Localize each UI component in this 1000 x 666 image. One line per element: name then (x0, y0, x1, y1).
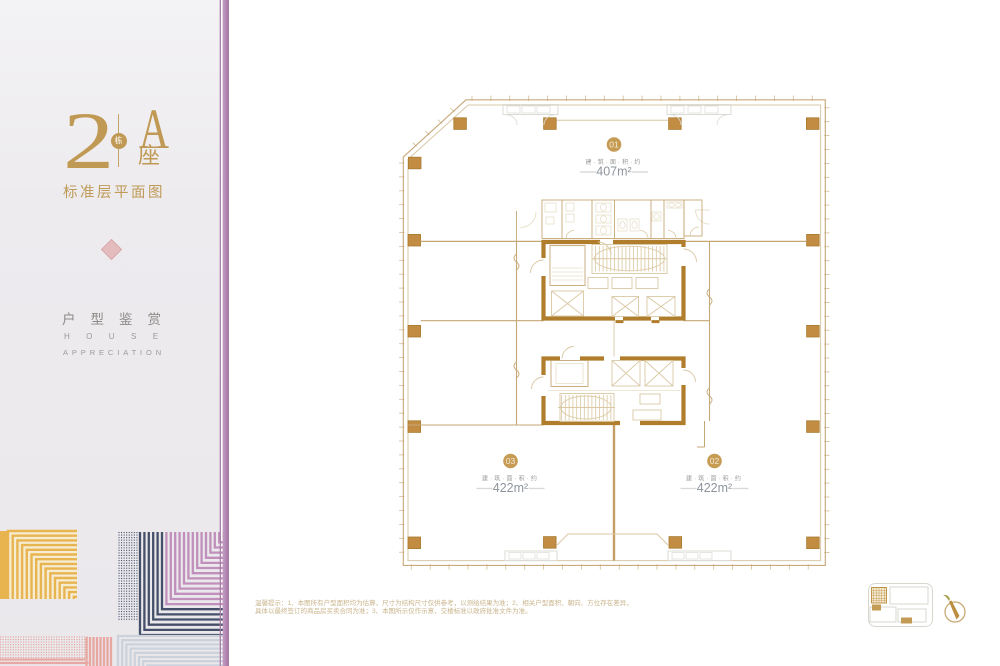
svg-text:422m²: 422m² (493, 481, 528, 495)
svg-text:422m²: 422m² (697, 481, 732, 495)
svg-text:03: 03 (506, 456, 516, 466)
svg-text:407m²: 407m² (596, 165, 631, 179)
svg-text:01: 01 (609, 139, 619, 149)
svg-text:02: 02 (710, 456, 720, 466)
